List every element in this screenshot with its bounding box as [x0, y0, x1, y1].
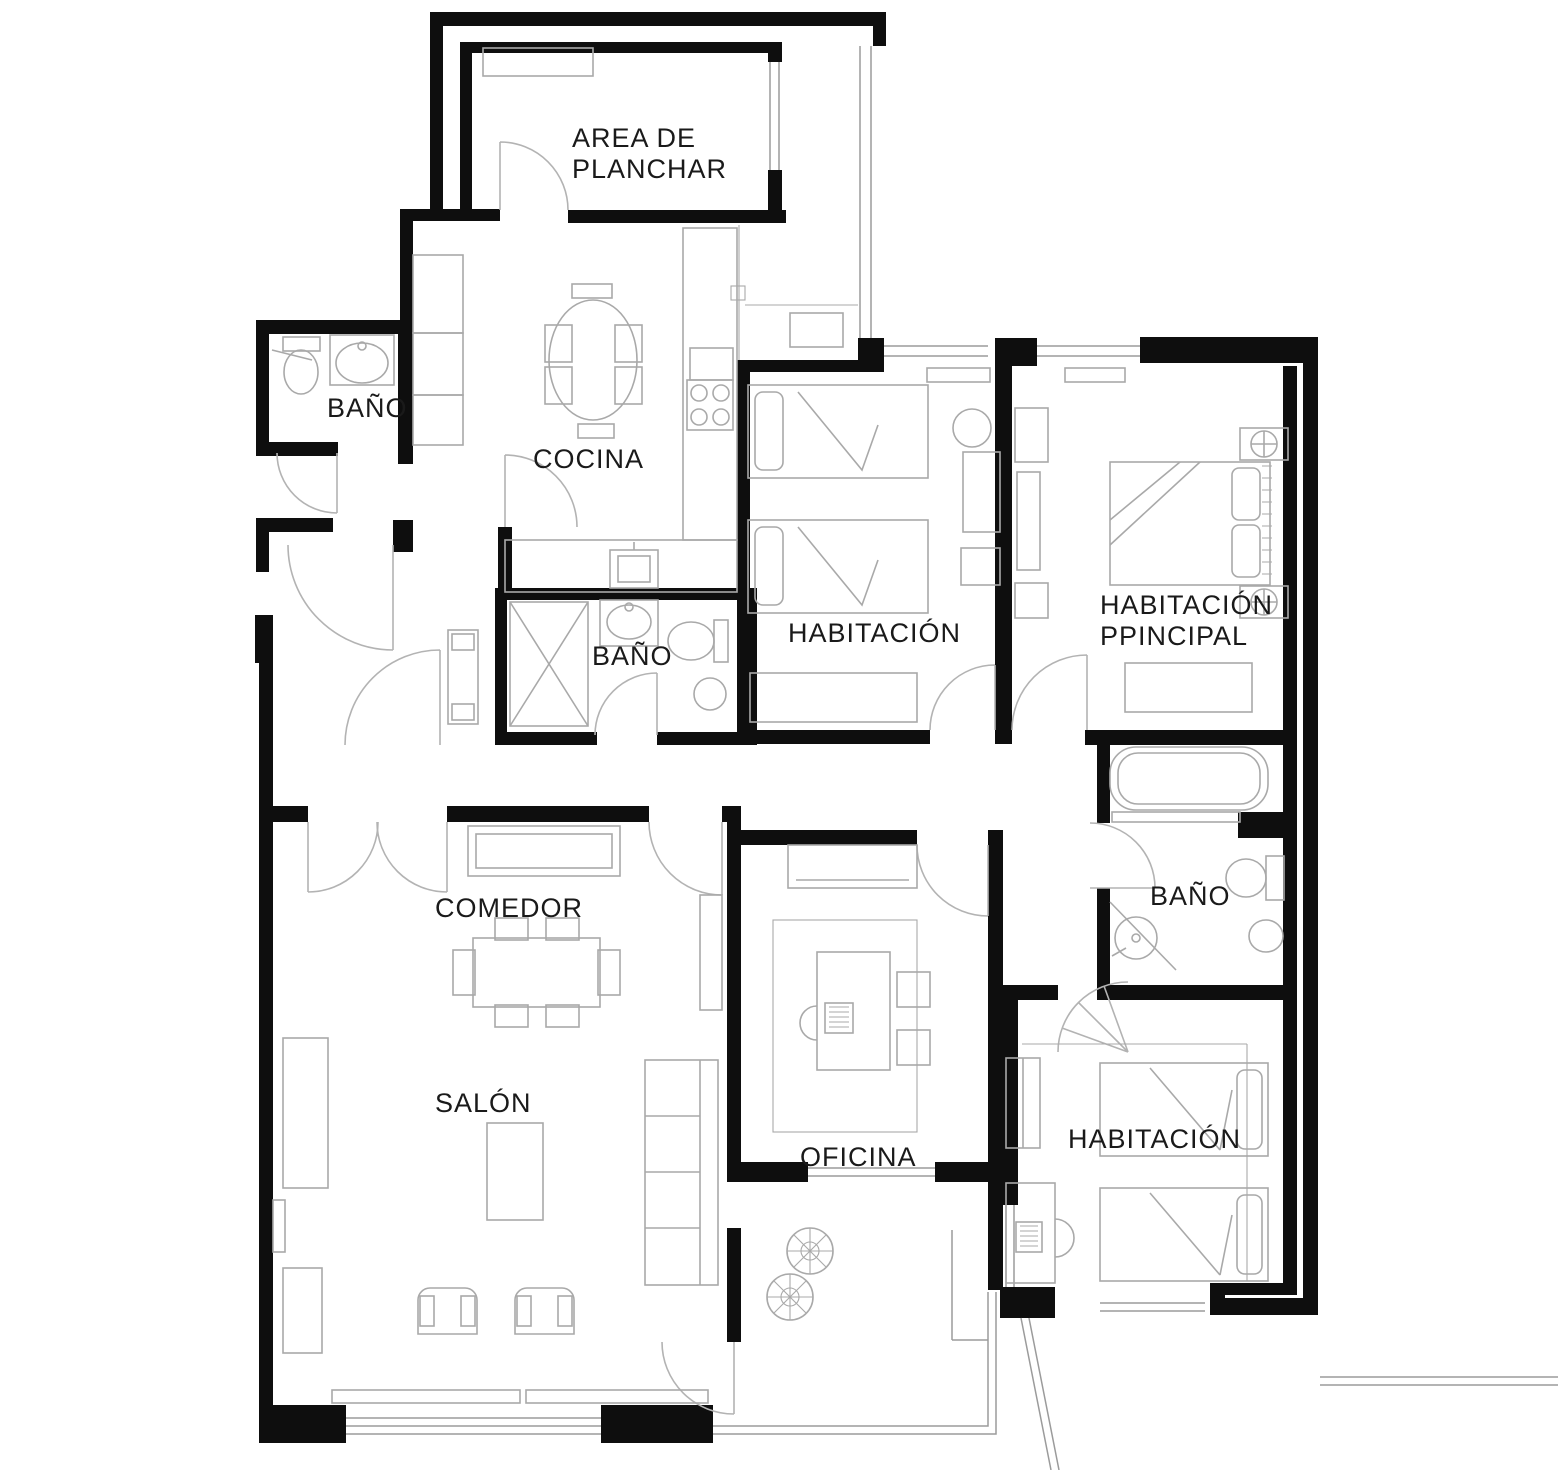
kitchen-counter: [683, 228, 737, 540]
kitchen-counter-bottom: [505, 540, 737, 592]
bedroom-center: [748, 368, 1000, 722]
room-label-bath-right: BAÑO: [1150, 880, 1231, 911]
floor-plan-page: AREA DE PLANCHAR BAÑO COCINA BAÑO HABITA…: [0, 0, 1558, 1470]
bed-icon: [1100, 1188, 1268, 1281]
terrace: [767, 1228, 833, 1320]
room-label-kitchen: COCINA: [533, 444, 644, 474]
room-label-bath-top-left: BAÑO: [327, 392, 408, 423]
shelf: [700, 895, 722, 1010]
plant-icon: [787, 1228, 833, 1274]
double-bed-icon: [1110, 462, 1272, 585]
bidet-icon: [1249, 920, 1283, 952]
sink-icon: [600, 600, 658, 646]
radiator: [448, 630, 478, 724]
bidet-icon: [694, 678, 726, 710]
armchair-icon: [515, 1288, 574, 1334]
bed-icon: [748, 385, 928, 478]
shelf: [1065, 368, 1125, 382]
floor-plan-svg: AREA DE PLANCHAR BAÑO COCINA BAÑO HABITA…: [0, 0, 1558, 1470]
dining-table-kitchen: [545, 284, 642, 438]
walls: [255, 12, 1318, 1443]
cabinet: [283, 1268, 322, 1353]
bathroom-top-left: [272, 335, 394, 394]
bathroom-right: [1110, 747, 1284, 970]
kitchen-cabinet: [413, 255, 463, 333]
kitchen: [413, 225, 858, 592]
room-label-bedroom-main-line1: HABITACIÓN: [1100, 589, 1273, 620]
coffee-table: [487, 1123, 543, 1220]
bedroom-main: [1015, 368, 1288, 712]
corner-sink-icon: [1110, 902, 1176, 970]
bathtub-icon: [1110, 747, 1268, 810]
desk-icon: [800, 952, 890, 1070]
room-label-bath-middle: BAÑO: [592, 640, 673, 671]
room-label-laundry-line2: PLANCHAR: [572, 154, 727, 184]
bedroom-bottom: [1006, 1044, 1268, 1283]
dresser: [1125, 663, 1252, 712]
wardrobe: [1017, 472, 1040, 570]
kitchen-cabinet: [413, 333, 463, 395]
toilet-icon: [1226, 856, 1284, 900]
kitchen-counter-module: [690, 348, 733, 380]
sofa-icon: [645, 1060, 718, 1285]
kitchen-cabinet: [413, 395, 463, 445]
side-table: [961, 548, 1000, 585]
room-label-bedroom-main-line2: PPINCIPAL: [1100, 621, 1248, 651]
office-sofa: [788, 845, 917, 888]
plant-icon: [767, 1274, 813, 1320]
dining-table-icon: [453, 918, 620, 1027]
stool-icon: [953, 409, 991, 447]
nightstand-icon: [1240, 428, 1288, 460]
dining-room: [448, 630, 722, 1027]
window-sill: [332, 1390, 520, 1403]
shelf: [927, 368, 990, 382]
room-label-dining: COMEDOR: [435, 893, 583, 923]
room-labels: AREA DE PLANCHAR BAÑO COCINA BAÑO HABITA…: [327, 123, 1273, 1172]
counter: [1112, 812, 1240, 822]
room-label-bedroom-center: HABITACIÓN: [788, 617, 961, 648]
sink-icon: [330, 335, 394, 385]
room-label-bedroom-bottom: HABITACIÓN: [1068, 1123, 1241, 1154]
armchair-icon: [418, 1288, 477, 1334]
shower-icon: [510, 602, 588, 726]
utility-box: [790, 313, 843, 347]
room-label-office: OFICINA: [800, 1142, 917, 1172]
room-label-living: SALÓN: [435, 1087, 532, 1118]
office: [773, 845, 930, 1132]
room-label-laundry-line1: AREA DE: [572, 123, 696, 153]
stove-icon: [687, 380, 733, 430]
side-table: [1015, 583, 1048, 618]
dresser: [750, 673, 917, 722]
bed-icon: [748, 520, 928, 613]
wardrobe: [963, 452, 1000, 532]
kitchen-sink-icon: [610, 542, 658, 588]
window-sill: [526, 1390, 708, 1403]
bookshelf: [283, 1038, 328, 1188]
toilet-icon: [668, 620, 728, 662]
wardrobe: [1015, 408, 1048, 462]
windows: [273, 46, 1558, 1470]
toilet-icon: [283, 337, 320, 394]
chair-icon: [897, 1030, 930, 1065]
chair-icon: [897, 972, 930, 1007]
sideboard-top: [476, 834, 612, 868]
